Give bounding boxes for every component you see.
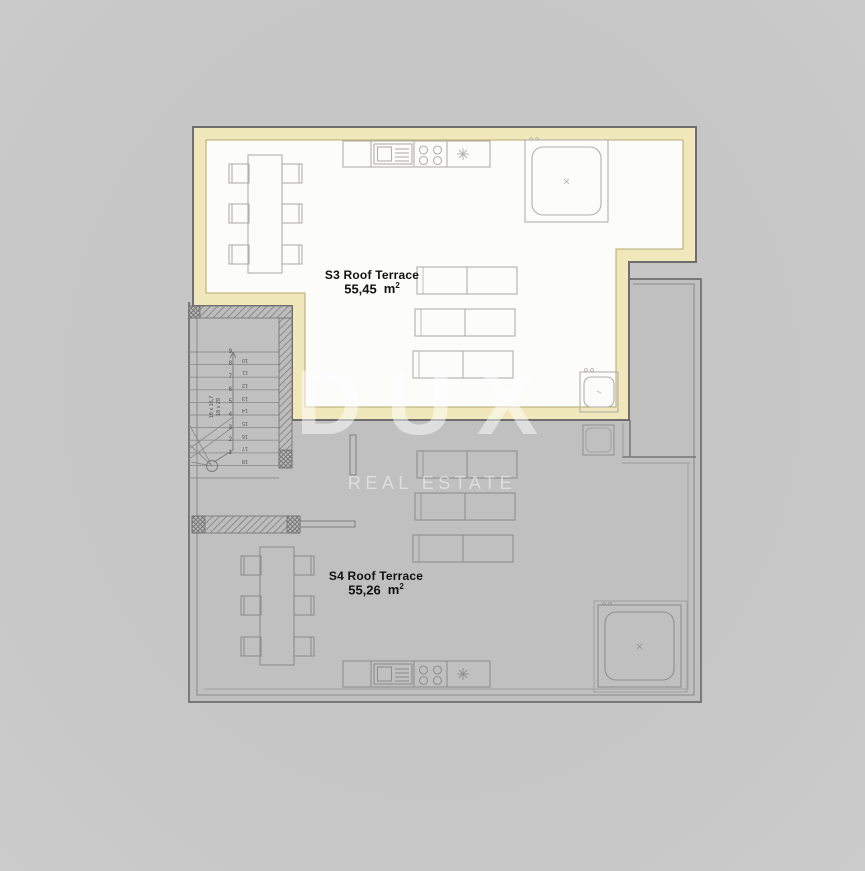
floor-plan-drawing — [0, 0, 865, 871]
